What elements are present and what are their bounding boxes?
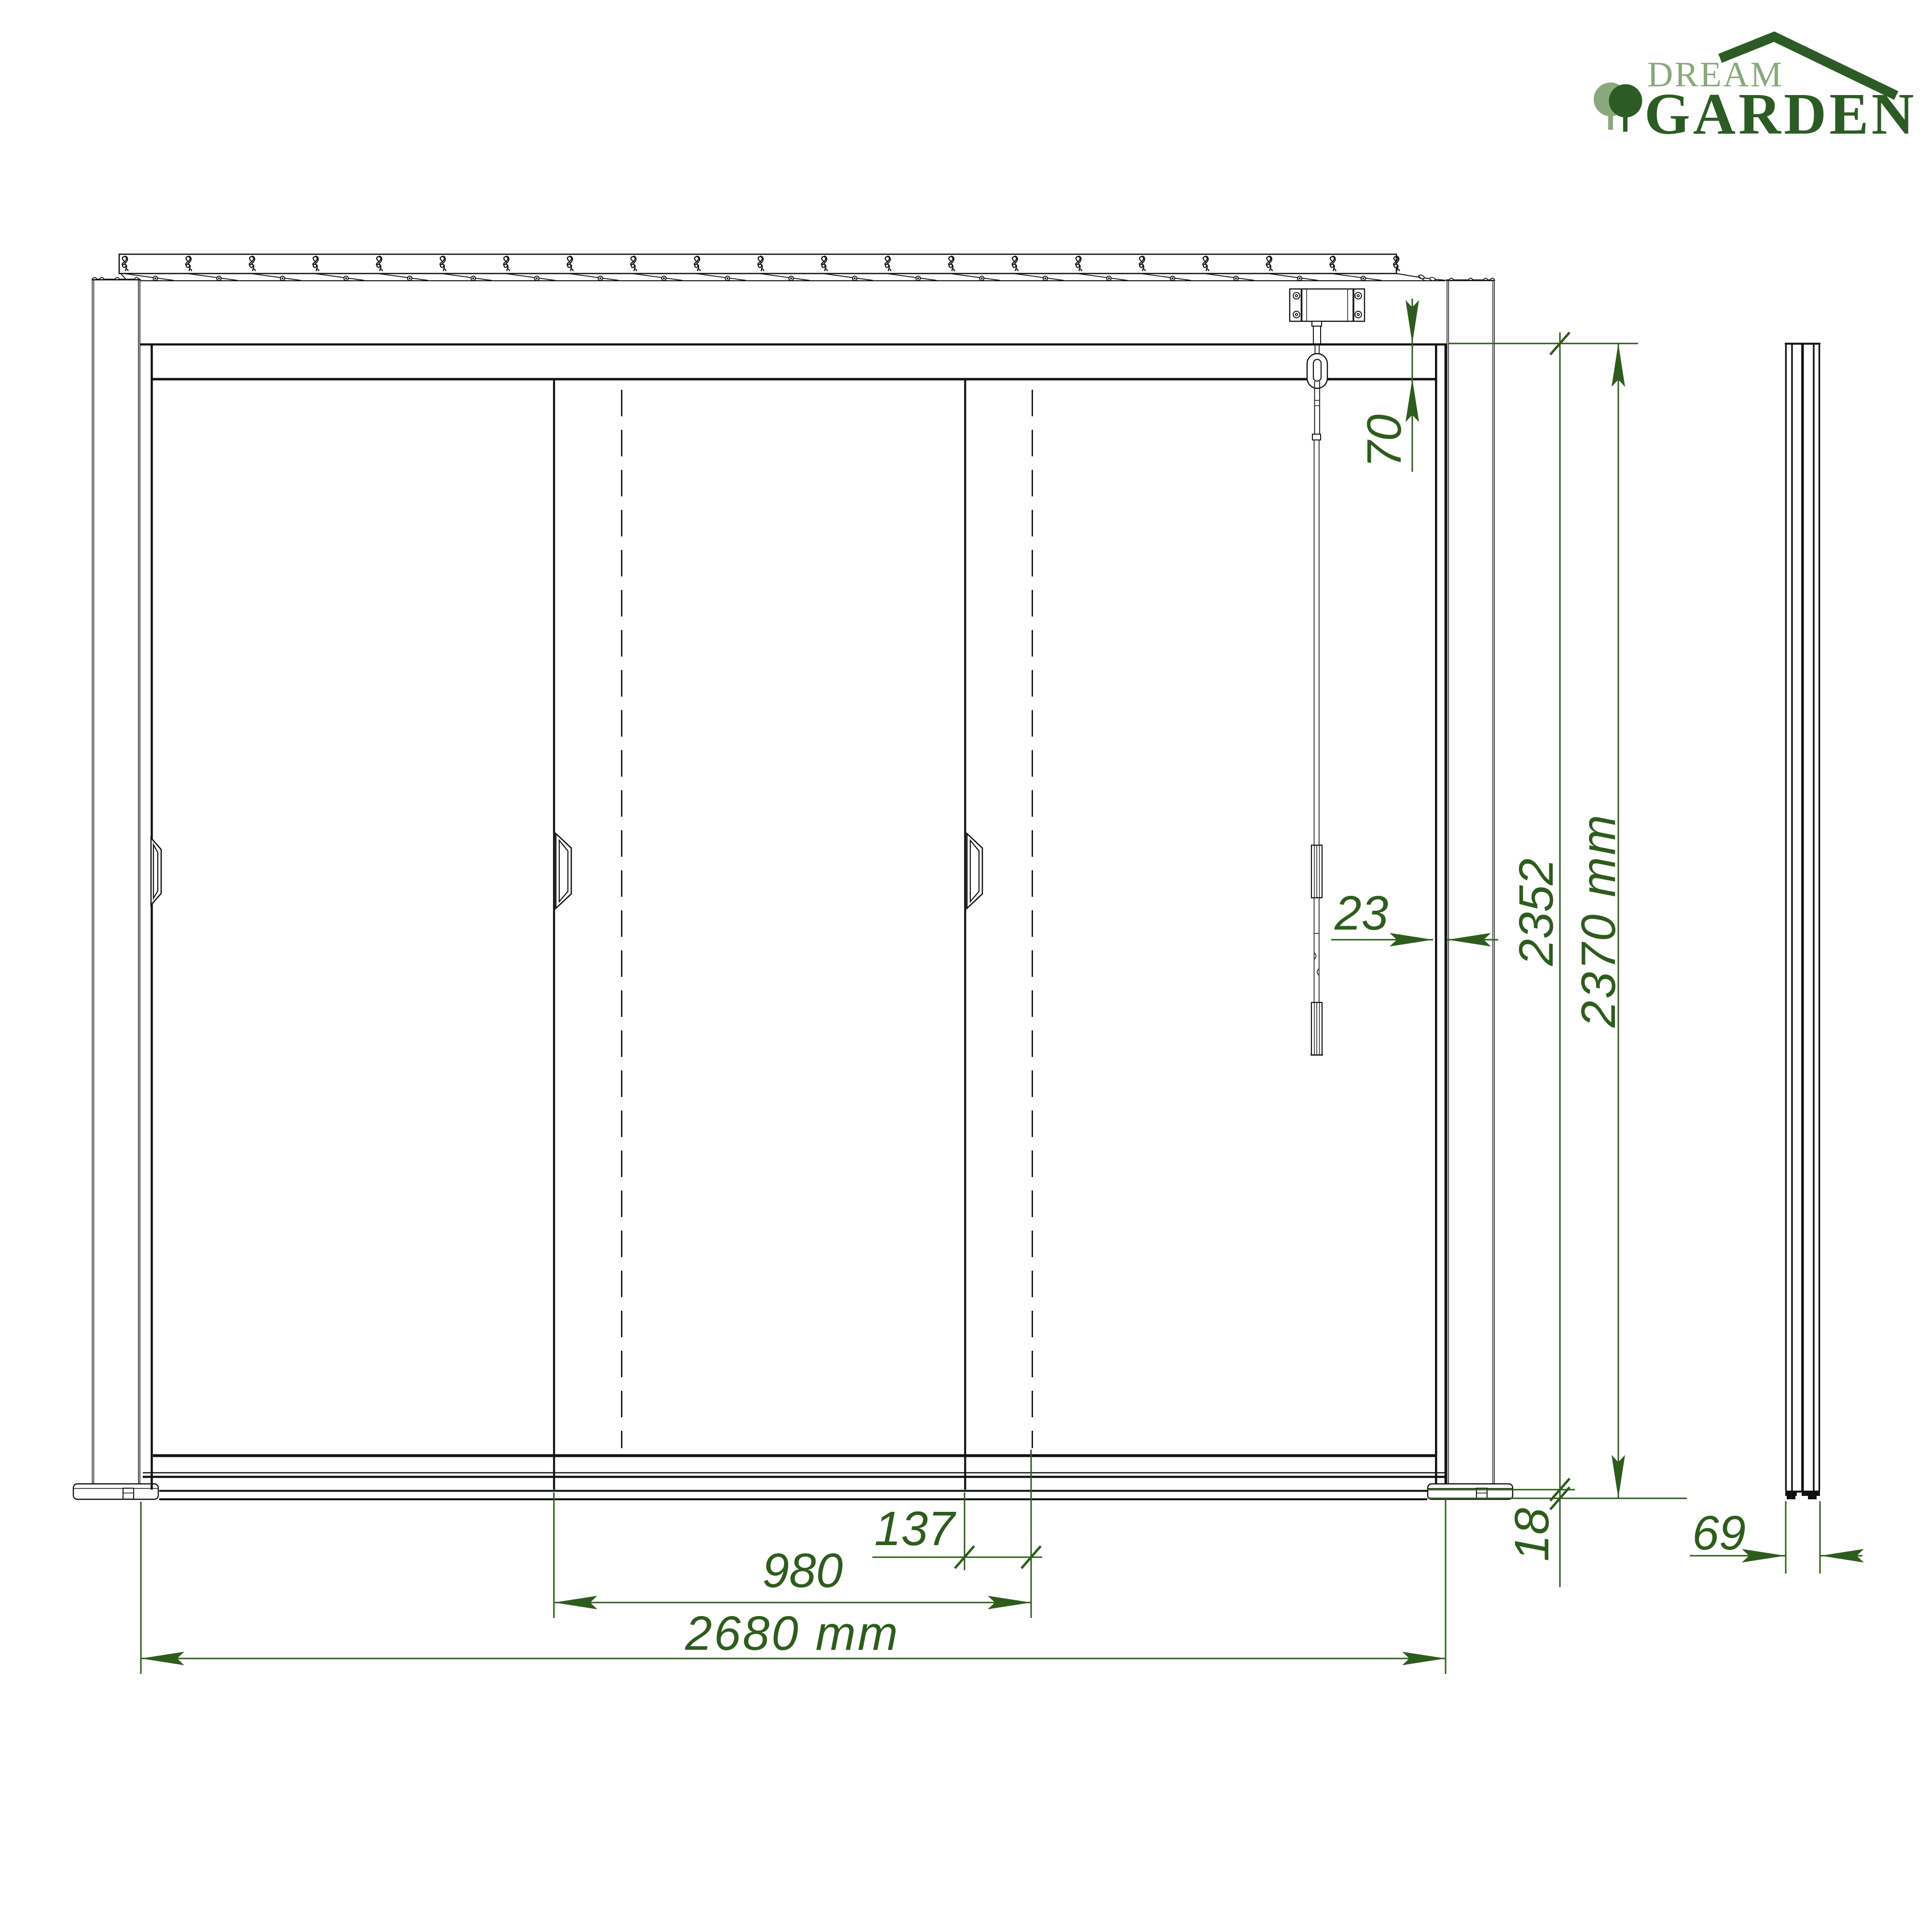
svg-text:2370 mm: 2370 mm [1572,813,1626,1028]
svg-text:137: 137 [874,1502,956,1556]
svg-text:2352: 2352 [1509,859,1563,966]
svg-text:GARDEN: GARDEN [1644,82,1917,147]
svg-text:2680 mm: 2680 mm [685,1606,900,1660]
svg-text:18: 18 [1505,1507,1559,1562]
svg-text:980: 980 [762,1544,843,1598]
svg-text:70: 70 [1357,414,1411,468]
svg-text:69: 69 [1692,1506,1746,1560]
svg-text:23: 23 [1334,886,1388,940]
